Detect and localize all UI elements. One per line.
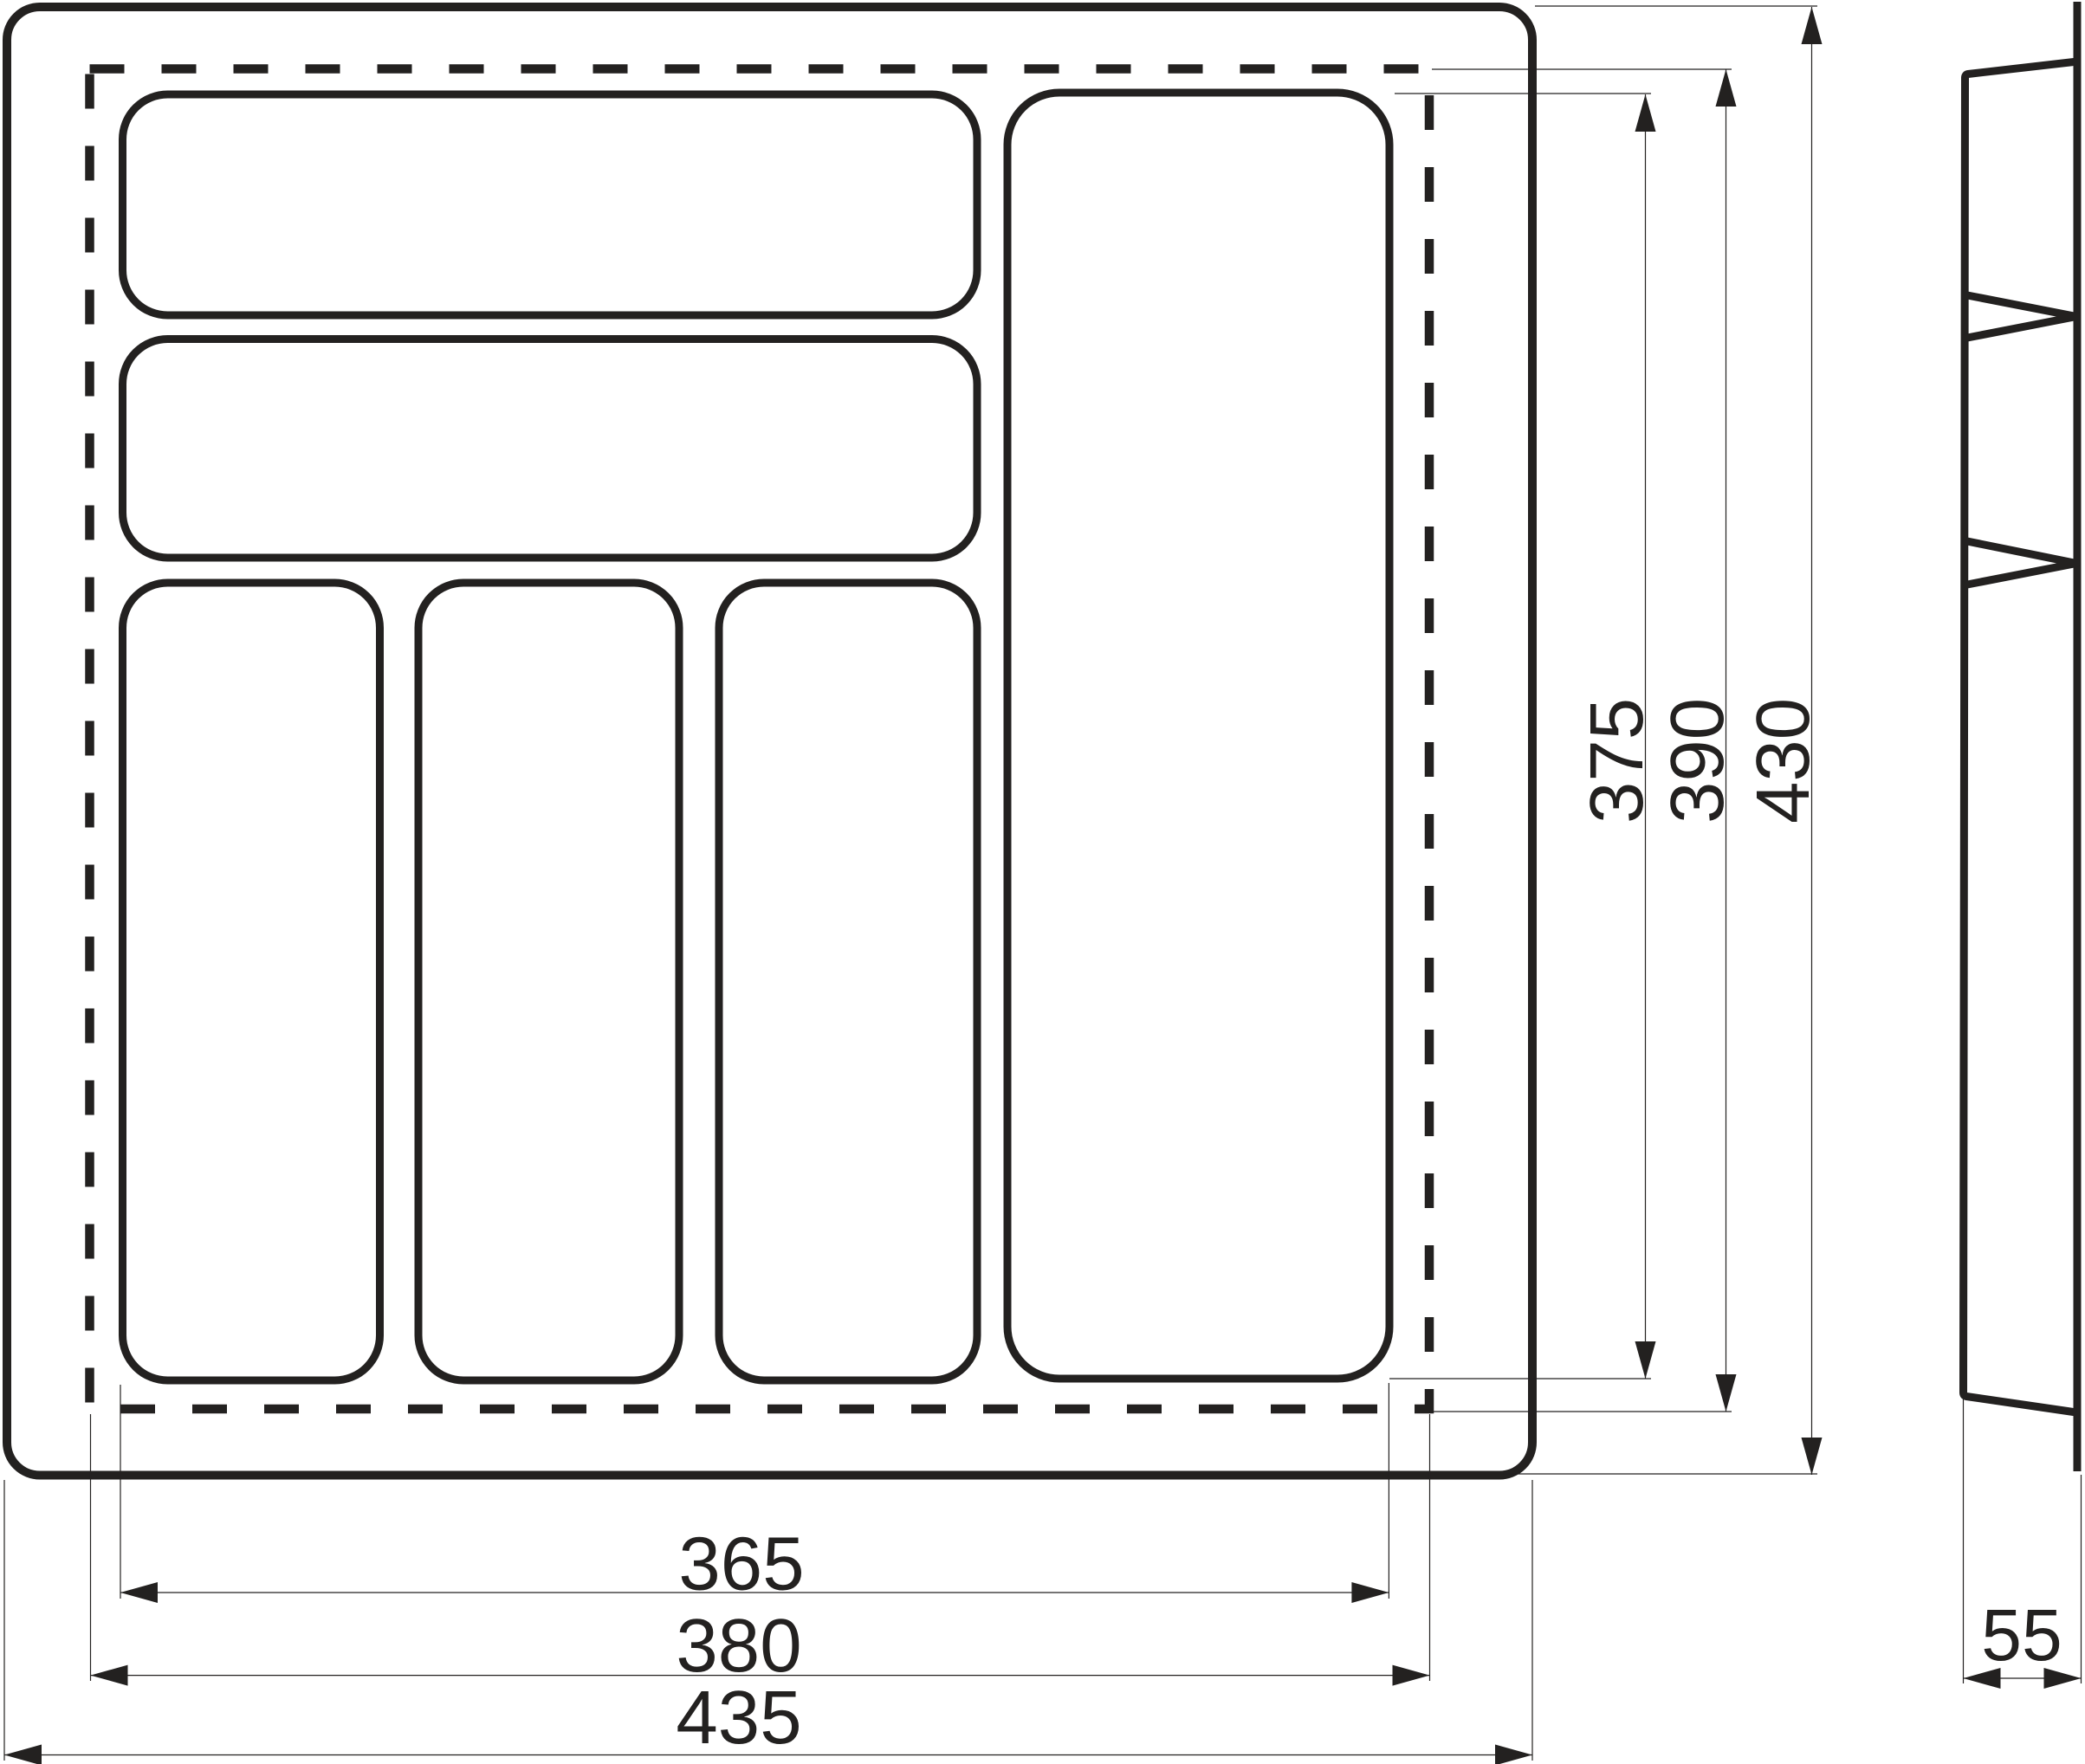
svg-text:55: 55 — [1981, 1594, 2062, 1676]
svg-text:375: 375 — [1575, 698, 1659, 824]
svg-text:390: 390 — [1655, 698, 1739, 824]
svg-text:365: 365 — [678, 1522, 804, 1606]
svg-text:435: 435 — [676, 1676, 801, 1760]
svg-text:430: 430 — [1741, 698, 1825, 824]
